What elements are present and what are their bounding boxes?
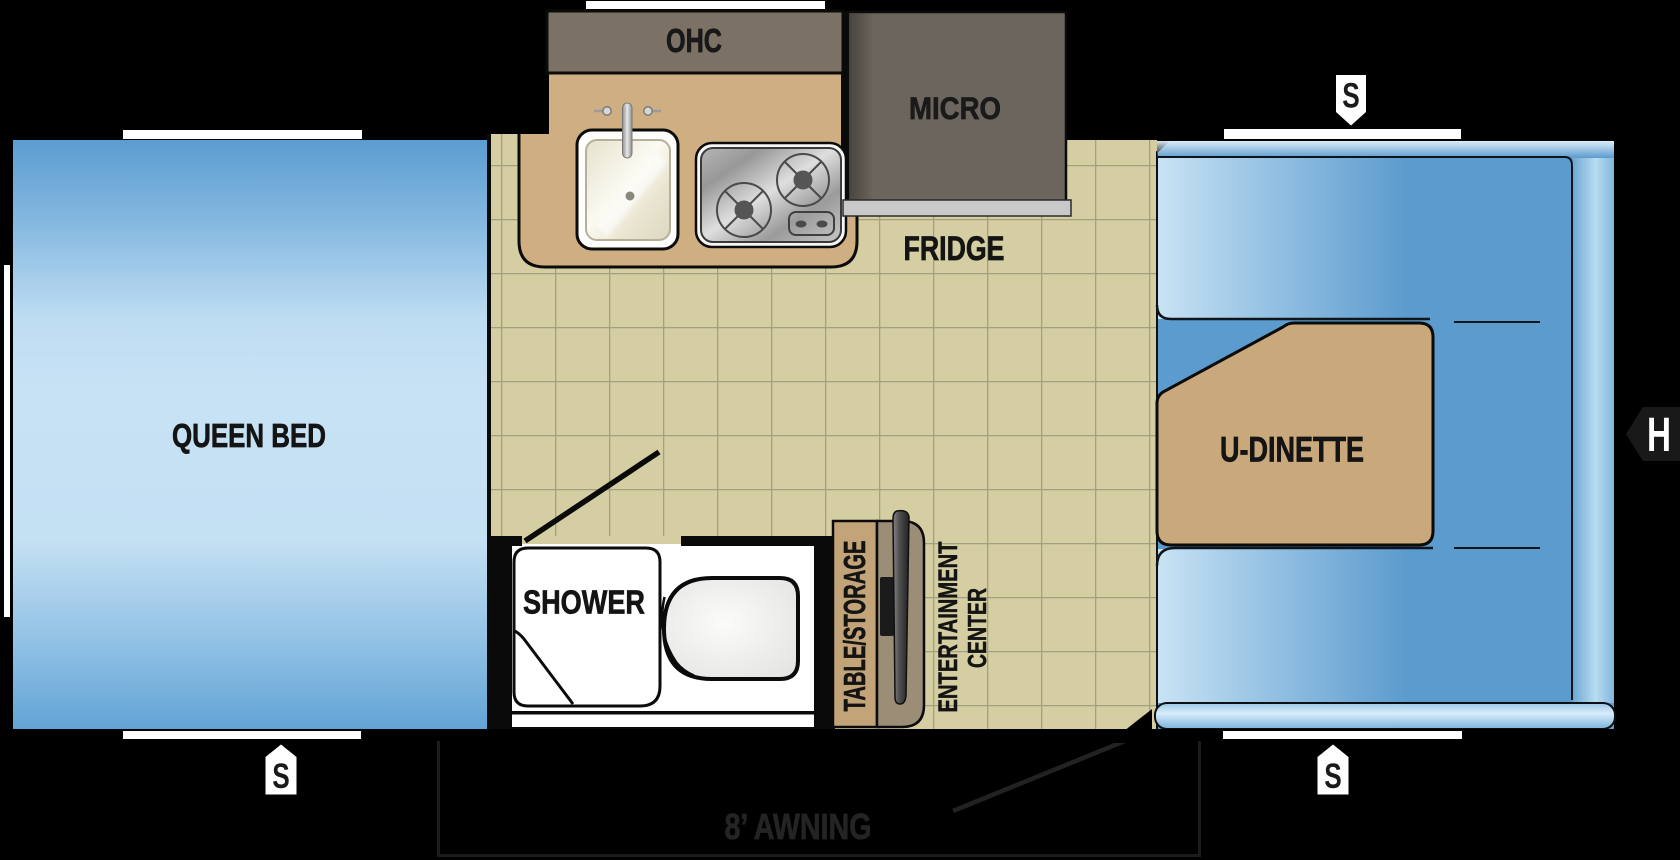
svg-text:H: H [1647,409,1671,462]
svg-text:SHOWER: SHOWER [523,584,645,621]
svg-text:QUEEN BED: QUEEN BED [172,417,326,454]
svg-text:TABLE/STORAGE: TABLE/STORAGE [837,541,872,712]
svg-text:FRIDGE: FRIDGE [904,230,1005,268]
svg-text:OHC: OHC [666,22,722,59]
svg-text:8’ AWNING: 8’ AWNING [725,806,872,847]
svg-text:U-DINETTE: U-DINETTE [1220,430,1364,470]
svg-text:S: S [1324,757,1342,796]
svg-text:S: S [272,757,290,796]
svg-text:ENTERTAINMENT: ENTERTAINMENT [933,541,963,712]
svg-text:CENTER: CENTER [962,588,992,668]
svg-text:MICRO: MICRO [909,90,1001,126]
svg-text:S: S [1342,77,1360,116]
